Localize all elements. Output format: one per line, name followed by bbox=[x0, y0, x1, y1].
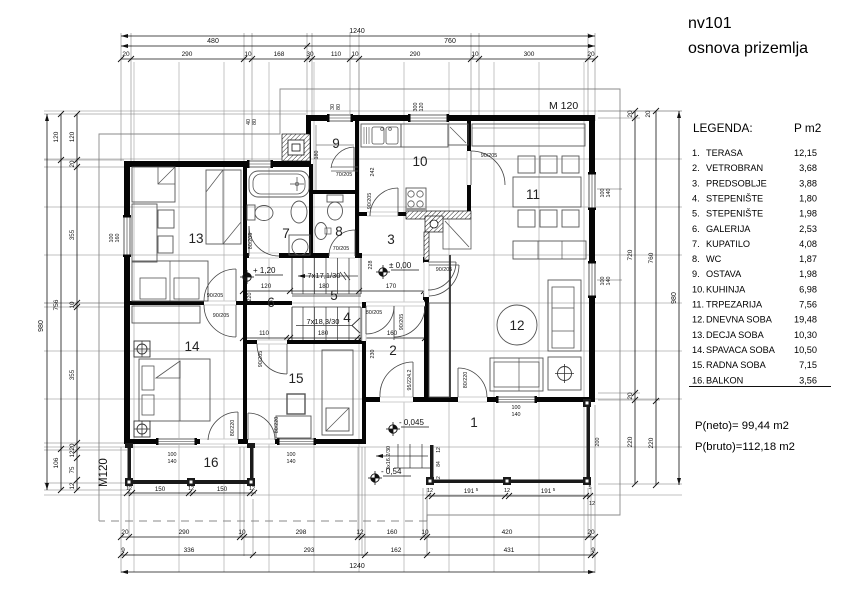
svg-text:7,15: 7,15 bbox=[799, 360, 817, 370]
svg-text:DNEVNA SOBA: DNEVNA SOBA bbox=[706, 315, 773, 325]
svg-text:120: 120 bbox=[261, 283, 272, 290]
svg-text:8: 8 bbox=[335, 224, 343, 239]
svg-text:20: 20 bbox=[121, 529, 129, 536]
svg-text:16.: 16. bbox=[692, 375, 705, 385]
svg-text:180: 180 bbox=[319, 283, 330, 290]
svg-text:20: 20 bbox=[122, 51, 130, 58]
svg-text:7.: 7. bbox=[692, 239, 700, 249]
svg-text:KUPATILO: KUPATILO bbox=[706, 239, 750, 249]
svg-text:80: 80 bbox=[336, 104, 342, 110]
svg-text:20: 20 bbox=[587, 529, 595, 536]
svg-text:420: 420 bbox=[502, 529, 513, 536]
svg-text:9: 9 bbox=[332, 136, 340, 151]
svg-text:14: 14 bbox=[184, 339, 200, 354]
svg-text:70/205: 70/205 bbox=[333, 246, 350, 252]
svg-text:4: 4 bbox=[343, 310, 351, 325]
svg-text:TERASA: TERASA bbox=[706, 148, 744, 158]
svg-text:480: 480 bbox=[207, 38, 219, 45]
svg-text:120: 120 bbox=[53, 131, 60, 142]
svg-text:12,15: 12,15 bbox=[794, 148, 817, 158]
svg-text:5.: 5. bbox=[692, 209, 700, 219]
svg-text:242: 242 bbox=[370, 168, 376, 177]
svg-text:180: 180 bbox=[314, 151, 320, 160]
svg-text:11.: 11. bbox=[692, 300, 704, 310]
svg-text:12: 12 bbox=[249, 486, 255, 492]
svg-text:10,30: 10,30 bbox=[794, 330, 817, 340]
svg-text:980: 980 bbox=[38, 320, 45, 332]
svg-text:OSTAVA: OSTAVA bbox=[706, 269, 742, 279]
svg-text:1,98: 1,98 bbox=[799, 269, 817, 279]
svg-text:298: 298 bbox=[296, 529, 307, 536]
svg-text:980: 980 bbox=[671, 292, 678, 304]
svg-text:20: 20 bbox=[645, 110, 652, 117]
svg-text:10: 10 bbox=[351, 51, 359, 58]
svg-text:9: 9 bbox=[121, 547, 125, 554]
svg-text:12: 12 bbox=[69, 482, 76, 489]
svg-text:osnova prizemlja: osnova prizemlja bbox=[688, 40, 808, 57]
svg-text:12: 12 bbox=[356, 529, 364, 536]
svg-text:336: 336 bbox=[184, 547, 195, 554]
svg-text:12: 12 bbox=[69, 450, 76, 457]
svg-text:10: 10 bbox=[69, 301, 76, 308]
svg-text:M120: M120 bbox=[98, 458, 110, 487]
svg-text:70/205: 70/205 bbox=[336, 172, 353, 178]
svg-text:760: 760 bbox=[444, 38, 456, 45]
svg-text:12: 12 bbox=[427, 488, 433, 494]
svg-text:3,56: 3,56 bbox=[799, 375, 817, 385]
svg-text:90/205: 90/205 bbox=[258, 351, 264, 368]
svg-text:220: 220 bbox=[247, 293, 253, 302]
svg-text:290: 290 bbox=[182, 51, 193, 58]
svg-text:3: 3 bbox=[387, 232, 395, 247]
svg-text:106: 106 bbox=[53, 457, 60, 468]
svg-text:11: 11 bbox=[526, 187, 540, 202]
svg-text:M 120: M 120 bbox=[549, 100, 578, 112]
svg-text:140: 140 bbox=[606, 189, 612, 198]
svg-text:7x18,3/30: 7x18,3/30 bbox=[307, 317, 340, 326]
svg-text:760: 760 bbox=[648, 252, 655, 263]
svg-text:19,48: 19,48 bbox=[794, 315, 817, 325]
svg-text:10: 10 bbox=[412, 154, 427, 169]
svg-text:GALERIJA: GALERIJA bbox=[706, 224, 751, 234]
svg-text:140: 140 bbox=[168, 459, 177, 465]
svg-text:120: 120 bbox=[69, 131, 76, 142]
svg-text:220: 220 bbox=[648, 437, 655, 448]
svg-text:1,80: 1,80 bbox=[799, 193, 817, 203]
svg-text:160: 160 bbox=[115, 234, 121, 243]
svg-text:150: 150 bbox=[217, 486, 228, 493]
svg-text:13: 13 bbox=[188, 231, 203, 246]
svg-text:140: 140 bbox=[606, 277, 612, 286]
svg-text:3,68: 3,68 bbox=[799, 163, 817, 173]
svg-text:162: 162 bbox=[391, 547, 402, 554]
svg-text:DECJA SOBA: DECJA SOBA bbox=[706, 330, 765, 340]
svg-text:80: 80 bbox=[252, 119, 258, 125]
svg-text:5: 5 bbox=[330, 288, 338, 303]
svg-text:4,08: 4,08 bbox=[799, 239, 817, 249]
svg-text:8.: 8. bbox=[692, 254, 700, 264]
svg-text:7x17,1/30: 7x17,1/30 bbox=[308, 271, 341, 280]
svg-text:2,53: 2,53 bbox=[799, 224, 817, 234]
svg-text:110: 110 bbox=[331, 51, 342, 58]
svg-text:720: 720 bbox=[627, 249, 634, 260]
svg-text:100: 100 bbox=[168, 452, 177, 458]
svg-text:150: 150 bbox=[155, 486, 166, 493]
svg-text:1: 1 bbox=[470, 415, 478, 430]
svg-text:120: 120 bbox=[419, 103, 425, 112]
svg-text:90/205: 90/205 bbox=[436, 267, 453, 273]
svg-text:140: 140 bbox=[287, 459, 296, 465]
svg-text:P(neto)= 99,44 m2: P(neto)= 99,44 m2 bbox=[695, 420, 789, 432]
svg-text:168: 168 bbox=[274, 51, 285, 58]
svg-text:5: 5 bbox=[588, 485, 591, 491]
svg-text:12.: 12. bbox=[692, 315, 705, 325]
svg-text:191: 191 bbox=[464, 488, 475, 495]
svg-text:170: 170 bbox=[386, 283, 397, 290]
svg-text:- 0,54: - 0,54 bbox=[381, 467, 402, 476]
svg-text:6,98: 6,98 bbox=[799, 284, 817, 294]
svg-text:VETROBRAN: VETROBRAN bbox=[706, 163, 763, 173]
svg-text:20: 20 bbox=[587, 51, 595, 58]
svg-text:1.: 1. bbox=[692, 148, 700, 158]
svg-text:191: 191 bbox=[541, 488, 552, 495]
svg-text:90/205: 90/205 bbox=[213, 313, 230, 319]
svg-text:80/220: 80/220 bbox=[230, 420, 236, 437]
svg-text:140: 140 bbox=[512, 412, 521, 418]
svg-text:290: 290 bbox=[410, 51, 421, 58]
svg-text:1240: 1240 bbox=[349, 28, 365, 35]
svg-text:228: 228 bbox=[368, 261, 374, 270]
svg-text:KUHINJA: KUHINJA bbox=[706, 284, 746, 294]
svg-text:PREDSOBLJE: PREDSOBLJE bbox=[706, 178, 767, 188]
svg-text:80/205: 80/205 bbox=[248, 233, 254, 250]
svg-text:200: 200 bbox=[595, 438, 601, 447]
svg-text:20: 20 bbox=[69, 443, 76, 450]
svg-text:7,56: 7,56 bbox=[799, 300, 817, 310]
svg-text:20: 20 bbox=[627, 392, 634, 400]
svg-text:P(bruto)=112,18 m2: P(bruto)=112,18 m2 bbox=[695, 441, 795, 453]
svg-text:LEGENDA:: LEGENDA: bbox=[693, 121, 753, 135]
svg-text:2.: 2. bbox=[692, 163, 700, 173]
svg-text:BALKON: BALKON bbox=[706, 375, 743, 385]
svg-text:756: 756 bbox=[53, 299, 60, 310]
svg-text:10: 10 bbox=[471, 51, 479, 58]
svg-text:1240: 1240 bbox=[349, 563, 365, 570]
svg-text:20: 20 bbox=[69, 160, 76, 167]
svg-text:SPAVACA SOBA: SPAVACA SOBA bbox=[706, 345, 776, 355]
svg-text:90/205: 90/205 bbox=[367, 193, 373, 210]
svg-text:WC: WC bbox=[706, 254, 722, 264]
svg-text:290: 290 bbox=[179, 529, 190, 536]
svg-text:90/205: 90/205 bbox=[399, 314, 405, 331]
svg-text:15.: 15. bbox=[692, 360, 705, 370]
svg-text:9: 9 bbox=[591, 547, 595, 554]
svg-text:12: 12 bbox=[126, 486, 132, 492]
svg-text:+ 1,20: + 1,20 bbox=[253, 266, 276, 275]
svg-text:1,87: 1,87 bbox=[799, 254, 817, 264]
svg-text:9.: 9. bbox=[692, 269, 700, 279]
svg-text:TRPEZARIJA: TRPEZARIJA bbox=[706, 300, 763, 310]
svg-text:293: 293 bbox=[304, 547, 315, 554]
svg-text:180: 180 bbox=[318, 330, 329, 337]
svg-text:20: 20 bbox=[627, 110, 634, 118]
svg-text:160: 160 bbox=[387, 529, 398, 536]
svg-text:1,98: 1,98 bbox=[799, 209, 817, 219]
svg-text:3,88: 3,88 bbox=[799, 178, 817, 188]
svg-text:12: 12 bbox=[589, 501, 595, 507]
svg-text:RADNA SOBA: RADNA SOBA bbox=[706, 360, 767, 370]
svg-text:220: 220 bbox=[627, 436, 634, 447]
svg-text:10: 10 bbox=[421, 529, 429, 536]
svg-text:2: 2 bbox=[389, 343, 397, 358]
svg-text:230: 230 bbox=[370, 350, 376, 359]
svg-text:± 0,00: ± 0,00 bbox=[389, 261, 412, 270]
svg-text:431: 431 bbox=[504, 547, 515, 554]
svg-text:80/220: 80/220 bbox=[463, 372, 469, 389]
svg-text:95/224.2: 95/224.2 bbox=[407, 370, 413, 391]
svg-text:14.: 14. bbox=[692, 345, 705, 355]
svg-text:100: 100 bbox=[287, 452, 296, 458]
svg-text:6: 6 bbox=[267, 295, 275, 310]
svg-text:90/205: 90/205 bbox=[207, 293, 224, 299]
svg-text:3.: 3. bbox=[692, 178, 700, 188]
svg-text:STEPENIŠTE: STEPENIŠTE bbox=[706, 193, 763, 203]
svg-text:nv101: nv101 bbox=[688, 15, 732, 32]
svg-text:6.: 6. bbox=[692, 224, 700, 234]
svg-text:16: 16 bbox=[203, 455, 218, 470]
svg-text:- 0,045: - 0,045 bbox=[399, 418, 424, 427]
svg-text:4.: 4. bbox=[692, 193, 700, 203]
svg-text:160: 160 bbox=[387, 330, 398, 337]
svg-text:110: 110 bbox=[259, 330, 269, 337]
svg-text:84: 84 bbox=[436, 461, 442, 467]
svg-text:30: 30 bbox=[306, 51, 314, 58]
svg-text:10: 10 bbox=[244, 51, 252, 58]
svg-text:80/205: 80/205 bbox=[366, 310, 383, 316]
svg-text:75: 75 bbox=[69, 466, 76, 473]
svg-text:10: 10 bbox=[238, 529, 246, 536]
svg-text:355: 355 bbox=[69, 369, 76, 380]
svg-text:10,50: 10,50 bbox=[794, 345, 817, 355]
svg-text:100: 100 bbox=[512, 405, 521, 411]
svg-text:12: 12 bbox=[509, 318, 524, 333]
svg-text:P m2: P m2 bbox=[794, 121, 821, 135]
svg-text:300: 300 bbox=[524, 51, 535, 58]
svg-text:10.: 10. bbox=[692, 284, 705, 294]
svg-text:12: 12 bbox=[436, 447, 442, 453]
svg-text:12: 12 bbox=[188, 486, 194, 492]
svg-text:15: 15 bbox=[288, 371, 303, 386]
svg-text:STEPENIŠTE: STEPENIŠTE bbox=[706, 209, 763, 219]
svg-text:7: 7 bbox=[282, 226, 290, 241]
svg-text:80/220: 80/220 bbox=[274, 417, 280, 434]
svg-text:12: 12 bbox=[504, 488, 510, 494]
svg-text:355: 355 bbox=[69, 229, 76, 240]
svg-text:90/205: 90/205 bbox=[481, 153, 498, 159]
svg-text:13.: 13. bbox=[692, 330, 705, 340]
